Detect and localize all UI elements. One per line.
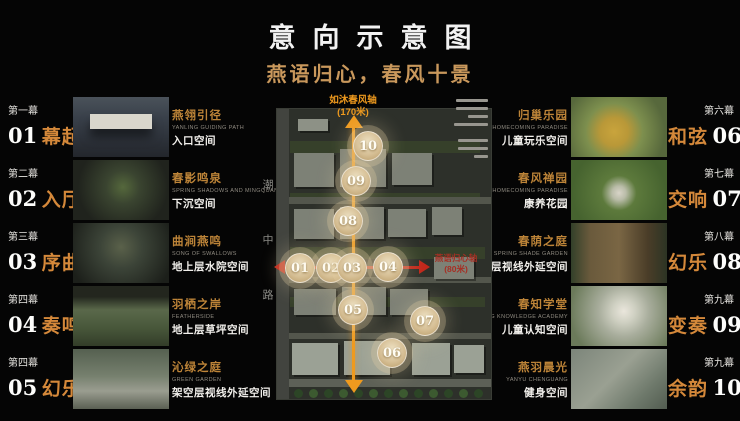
map-legend — [454, 99, 488, 163]
photo-shade-garden — [571, 223, 667, 283]
page-subtitle: 燕语归心，春风十景 — [0, 58, 740, 87]
photo-green-garden — [73, 349, 169, 409]
act-block: 第九幕 变奏 09 — [668, 286, 734, 338]
space-type: 儿童认知空间 — [502, 322, 568, 337]
scene-name: 交响 — [668, 190, 708, 211]
scene-number: 10 — [712, 375, 740, 400]
scene-number: 01 — [8, 123, 37, 148]
feature-name-en: YANLING GUIDING PATH — [172, 125, 254, 131]
photo-lawn — [73, 286, 169, 346]
scene-number: 05 — [8, 375, 37, 400]
scene-caption: 春风禅园 HOMECOMING PARADISE 康养花园 — [494, 160, 568, 220]
map-marker-07: 07 — [410, 306, 440, 336]
scene-number: 09 — [712, 312, 740, 337]
tree-icon — [444, 389, 453, 398]
tree-icon — [294, 389, 303, 398]
map-road — [289, 379, 491, 387]
map-legend-line — [458, 147, 488, 150]
tree-icon — [399, 389, 408, 398]
act-label: 第四幕 — [8, 354, 74, 369]
act-label: 第一幕 — [8, 102, 74, 117]
site-plan-map: 潮中路 — [258, 97, 492, 400]
map-building — [392, 153, 432, 185]
scene-number: 04 — [8, 312, 37, 337]
horizontal-axis-label: 燕语归心轴 (80米) — [423, 253, 489, 275]
map-legend-line — [454, 123, 488, 126]
tree-icon — [324, 389, 333, 398]
horizontal-axis-name: 燕语归心轴 — [423, 253, 489, 264]
space-type: 健身空间 — [524, 385, 568, 400]
feature-name: 沁绿之庭 — [172, 359, 254, 375]
feature-name-en: HOMECOMING PARADISE — [492, 188, 568, 194]
scene-name: 幻乐 — [668, 253, 708, 274]
map-legend-line — [458, 139, 488, 142]
feature-name: 羽栖之岸 — [172, 296, 254, 312]
page-title: 意向示意图 — [0, 16, 740, 55]
feature-name-en: SPRING SHADE GARDEN — [494, 251, 568, 257]
feature-name: 燕翎引径 — [172, 107, 254, 123]
scene-number: 02 — [8, 186, 37, 211]
act-block: 第四幕 05 幻乐 — [8, 349, 74, 401]
map-marker-09: 09 — [341, 166, 371, 196]
act-block: 第四幕 04 奏鸣 — [8, 286, 74, 338]
map-building — [412, 343, 450, 375]
scene-caption: 沁绿之庭 GREEN GARDEN 架空层视线外延空间 — [172, 349, 254, 409]
act-label: 第三幕 — [8, 228, 74, 243]
feature-name-en: HOMECOMING PARADISE — [492, 125, 568, 131]
photo-kids-playground — [571, 97, 667, 157]
tree-icon — [429, 389, 438, 398]
orange-arrow-down-icon — [345, 380, 363, 393]
feature-name: 曲涧燕鸣 — [172, 233, 254, 249]
photo-fitness-garden — [571, 349, 667, 409]
photo-water-court — [73, 223, 169, 283]
feature-name: 归巢乐园 — [518, 107, 568, 123]
act-label: 第七幕 — [668, 165, 734, 180]
map-marker-10: 10 — [353, 131, 383, 161]
scene-name: 和弦 — [668, 127, 708, 148]
feature-name: 春影鸣泉 — [172, 170, 254, 186]
scene-name: 变奏 — [668, 316, 708, 337]
scene-caption: 羽栖之岸 FEATHERSIDE 地上层草坪空间 — [172, 286, 254, 346]
map-legend-line — [456, 107, 488, 110]
red-arrow-left-icon — [274, 260, 285, 274]
map-building — [298, 119, 328, 131]
map-road — [289, 197, 491, 204]
photo-zen-garden — [571, 160, 667, 220]
map-marker-03: 03 — [337, 253, 367, 283]
space-type: 儿童玩乐空间 — [502, 133, 568, 148]
map-marker-08: 08 — [333, 206, 363, 236]
act-block: 第六幕 和弦 06 — [668, 97, 734, 149]
map-building — [432, 207, 462, 235]
tree-icon — [459, 389, 468, 398]
space-type: 架空层视线外延空间 — [172, 385, 254, 400]
scene-caption: 燕翎引径 YANLING GUIDING PATH 入口空间 — [172, 97, 254, 157]
act-block: 第九幕 余韵 10 — [668, 349, 734, 401]
tree-icon — [309, 389, 318, 398]
scene-number: 08 — [712, 249, 740, 274]
map-legend-line — [474, 155, 488, 158]
photo-learning-garden — [571, 286, 667, 346]
act-block: 第二幕 02 入厅 — [8, 160, 74, 212]
map-building — [294, 209, 334, 239]
feature-name-en: FEATHERSIDE — [172, 314, 254, 320]
act-block: 第三幕 03 序曲 — [8, 223, 74, 275]
vertical-axis-name: 如沐春风轴 — [308, 95, 398, 107]
map-road-vertical — [277, 109, 289, 399]
tree-icon — [384, 389, 393, 398]
act-label: 第九幕 — [668, 354, 734, 369]
photo-sunken-court — [73, 160, 169, 220]
feature-name-en: YANYU CHENGUANG — [506, 377, 568, 383]
map-building — [454, 345, 484, 373]
space-type: 入口空间 — [172, 133, 254, 148]
space-type: 下沉空间 — [172, 196, 254, 211]
scene-caption: 曲涧燕鸣 SONG OF SWALLOWS 地上层水院空间 — [172, 223, 254, 283]
scene-number: 06 — [712, 123, 740, 148]
map-building — [294, 153, 334, 187]
street-name-label: 潮中路 — [259, 179, 275, 344]
photo-entrance — [73, 97, 169, 157]
scene-number: 03 — [8, 249, 37, 274]
scene-caption: 春知学堂 SPRING KNOWLEDGE ACADEMY 儿童认知空间 — [494, 286, 568, 346]
map-building — [294, 289, 336, 315]
feature-name: 春荫之庭 — [518, 233, 568, 249]
feature-name-en: GREEN GARDEN — [172, 377, 254, 383]
scene-caption: 春荫之庭 SPRING SHADE GARDEN 架空层视线外延空间 — [494, 223, 568, 283]
tree-icon — [474, 389, 483, 398]
act-block: 第一幕 01 幕起 — [8, 97, 74, 149]
feature-name: 春知学堂 — [518, 296, 568, 312]
vertical-axis-label: 如沐春风轴 (170米) — [308, 95, 398, 119]
horizontal-axis-length: (80米) — [423, 264, 489, 275]
scene-caption: 归巢乐园 HOMECOMING PARADISE 儿童玩乐空间 — [494, 97, 568, 157]
act-label: 第四幕 — [8, 291, 74, 306]
map-building — [292, 343, 338, 375]
scene-number: 07 — [712, 186, 740, 211]
scene-caption: 燕羽晨光 YANYU CHENGUANG 健身空间 — [494, 349, 568, 409]
feature-name-en: SONG OF SWALLOWS — [172, 251, 254, 257]
act-label: 第八幕 — [668, 228, 734, 243]
act-block: 第七幕 交响 07 — [668, 160, 734, 212]
feature-name: 燕羽晨光 — [518, 359, 568, 375]
space-type: 康养花园 — [524, 196, 568, 211]
map-legend-line — [468, 115, 488, 118]
map-building — [388, 209, 426, 237]
act-label: 第二幕 — [8, 165, 74, 180]
scene-name: 余韵 — [668, 379, 708, 400]
act-block: 第八幕 幻乐 08 — [668, 223, 734, 275]
space-type: 地上层水院空间 — [172, 259, 254, 274]
map-marker-05: 05 — [338, 295, 368, 325]
map-marker-01: 01 — [285, 253, 315, 283]
vertical-axis-length: (170米) — [308, 107, 398, 119]
tree-icon — [414, 389, 423, 398]
feature-name-en: SPRING SHADOWS AND MINGQUAN — [172, 188, 254, 194]
map-marker-06: 06 — [377, 338, 407, 368]
act-label: 第六幕 — [668, 102, 734, 117]
slide: 意向示意图 燕语归心，春风十景 第一幕 01 幕起 燕翎引径 YANLING G… — [0, 0, 740, 421]
scene-caption: 春影鸣泉 SPRING SHADOWS AND MINGQUAN 下沉空间 — [172, 160, 254, 220]
act-label: 第九幕 — [668, 291, 734, 306]
map-marker-04: 04 — [373, 252, 403, 282]
map-legend-line — [456, 99, 488, 102]
space-type: 地上层草坪空间 — [172, 322, 254, 337]
feature-name: 春风禅园 — [518, 170, 568, 186]
tree-icon — [369, 389, 378, 398]
